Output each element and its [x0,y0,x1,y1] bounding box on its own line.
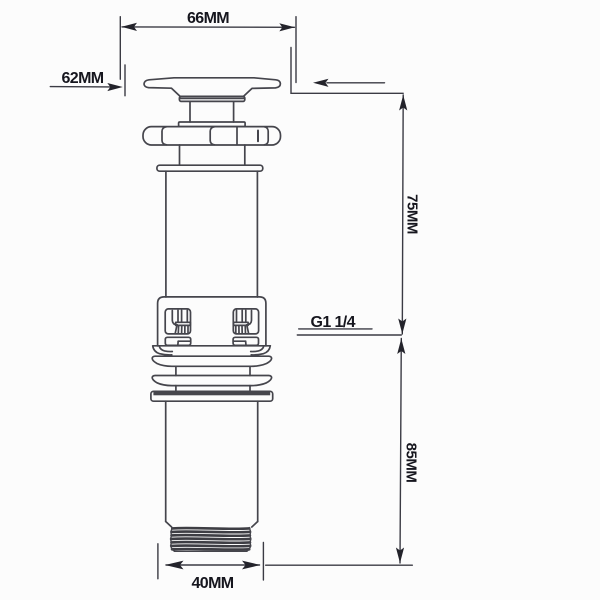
svg-text:40MM: 40MM [191,575,233,592]
svg-text:62MM: 62MM [61,70,103,87]
svg-text:85MM: 85MM [403,443,420,483]
svg-text:66MM: 66MM [187,10,229,27]
svg-text:75MM: 75MM [404,194,421,234]
svg-text:G1 1/4: G1 1/4 [310,314,355,331]
